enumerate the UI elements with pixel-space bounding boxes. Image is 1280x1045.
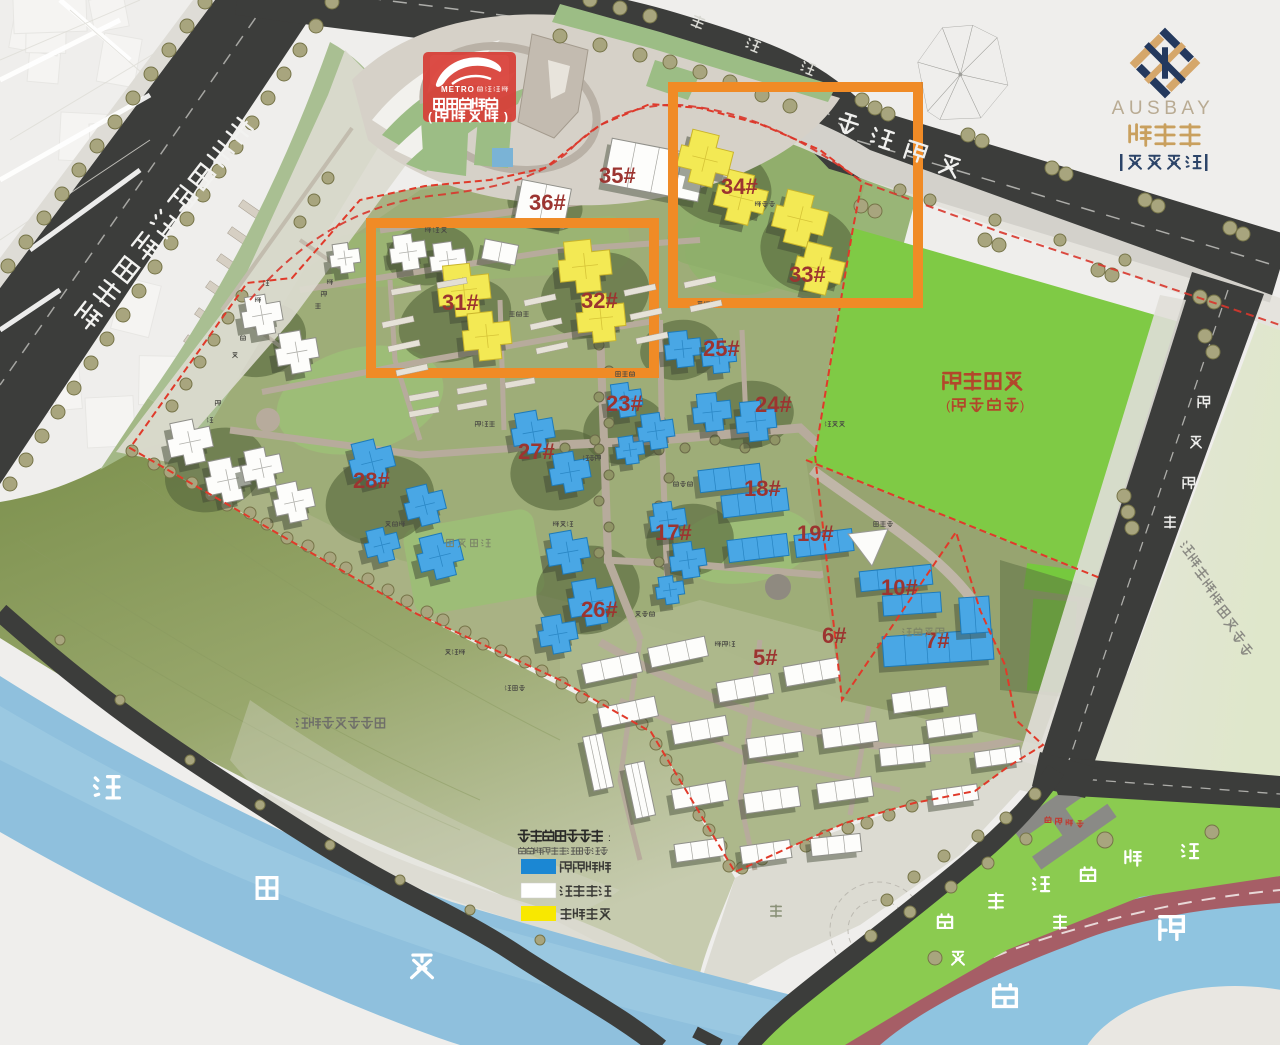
svg-text:6#: 6# xyxy=(822,623,846,648)
svg-text:): ) xyxy=(1020,398,1024,413)
svg-text:AUSBAY: AUSBAY xyxy=(1112,98,1215,119)
svg-text:25#: 25# xyxy=(703,336,740,361)
svg-text:33#: 33# xyxy=(789,262,826,287)
svg-text:36#: 36# xyxy=(529,190,566,215)
svg-text:28#: 28# xyxy=(353,468,390,493)
svg-text:32#: 32# xyxy=(581,288,618,313)
svg-text:27#: 27# xyxy=(518,439,555,464)
svg-text:31#: 31# xyxy=(442,290,479,315)
svg-text:19#: 19# xyxy=(797,521,834,546)
svg-text:17#: 17# xyxy=(655,520,692,545)
svg-text:METRO: METRO xyxy=(441,85,475,94)
svg-text:34#: 34# xyxy=(721,174,758,199)
svg-text:10#: 10# xyxy=(881,575,918,600)
svg-text:(: ( xyxy=(428,110,432,124)
svg-text:23#: 23# xyxy=(606,391,643,416)
svg-text:5#: 5# xyxy=(753,645,777,670)
svg-text:35#: 35# xyxy=(599,163,636,188)
svg-text:(: ( xyxy=(946,398,951,413)
svg-text:24#: 24# xyxy=(755,392,792,417)
svg-text::: : xyxy=(608,833,611,844)
svg-text:18#: 18# xyxy=(744,476,781,501)
svg-text:26#: 26# xyxy=(581,597,618,622)
svg-text:): ) xyxy=(504,110,508,124)
